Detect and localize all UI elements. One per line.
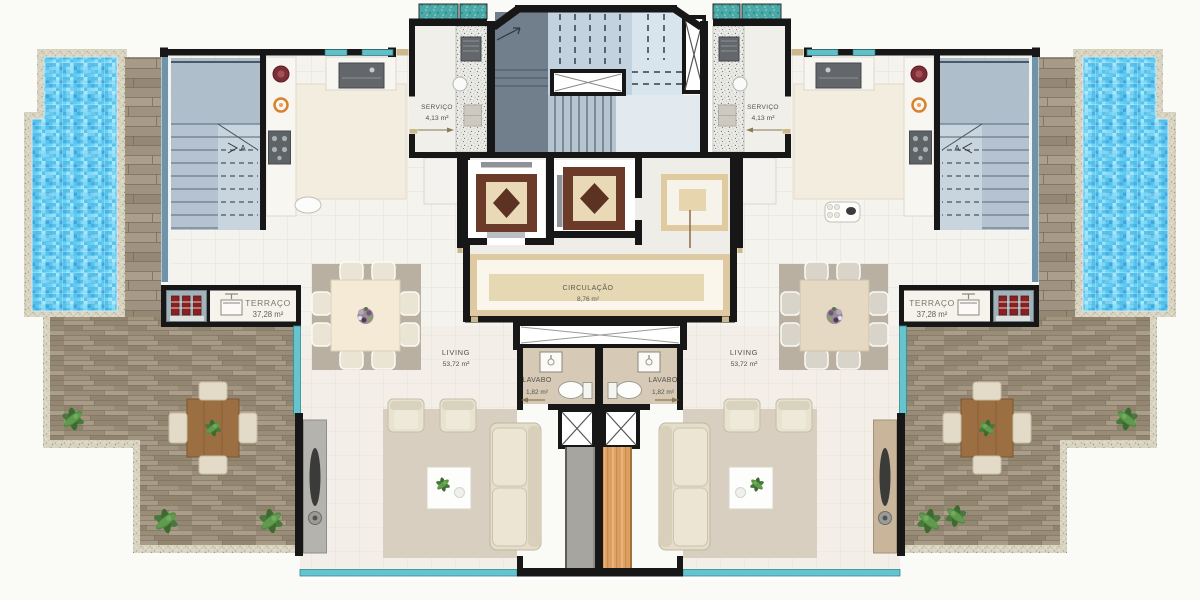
- svg-text:53,72 m²: 53,72 m²: [731, 361, 759, 368]
- svg-text:A: A: [240, 144, 246, 153]
- svg-text:CIRCULAÇÃO: CIRCULAÇÃO: [563, 283, 614, 292]
- svg-text:LAVABO: LAVABO: [648, 377, 678, 384]
- svg-text:LAVABO: LAVABO: [522, 377, 552, 384]
- svg-text:SERVIÇO: SERVIÇO: [421, 104, 453, 111]
- svg-text:LIVING: LIVING: [442, 348, 470, 357]
- svg-text:4,13 m²: 4,13 m²: [425, 115, 449, 122]
- svg-text:LIVING: LIVING: [730, 348, 758, 357]
- svg-text:TERRAÇO: TERRAÇO: [909, 298, 955, 308]
- svg-text:53,72 m²: 53,72 m²: [443, 361, 471, 368]
- svg-text:SERVIÇO: SERVIÇO: [747, 104, 779, 111]
- svg-text:37,28 m²: 37,28 m²: [917, 310, 948, 319]
- svg-text:37,28 m²: 37,28 m²: [253, 310, 284, 319]
- svg-text:4,13 m²: 4,13 m²: [751, 115, 775, 122]
- svg-text:1,82 m²: 1,82 m²: [526, 389, 549, 396]
- svg-text:1,82 m²: 1,82 m²: [652, 389, 675, 396]
- svg-text:A: A: [954, 144, 960, 153]
- svg-text:TERRAÇO: TERRAÇO: [245, 298, 291, 308]
- svg-text:8,76 m²: 8,76 m²: [577, 296, 600, 303]
